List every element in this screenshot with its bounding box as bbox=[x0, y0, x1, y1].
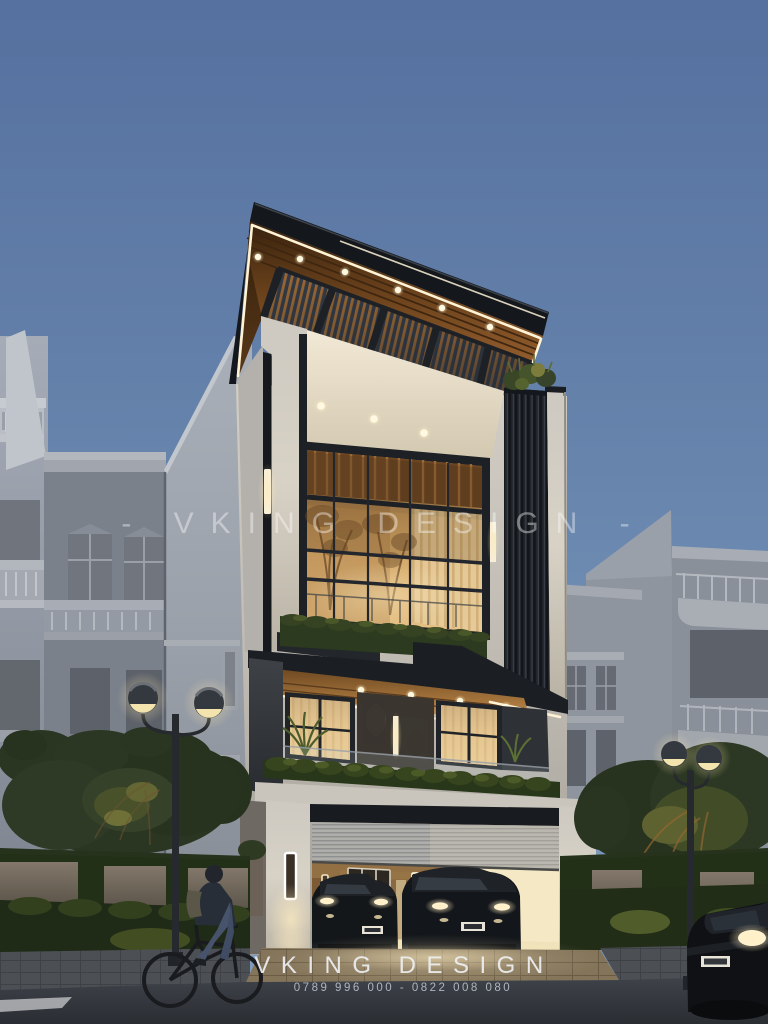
svg-text:VKING DESIGN: VKING DESIGN bbox=[254, 952, 553, 979]
svg-text:0789 996 000 - 0822 008 080: 0789 996 000 - 0822 008 080 bbox=[294, 982, 512, 994]
svg-text:- VKING DESIGN -: - VKING DESIGN - bbox=[121, 507, 646, 540]
